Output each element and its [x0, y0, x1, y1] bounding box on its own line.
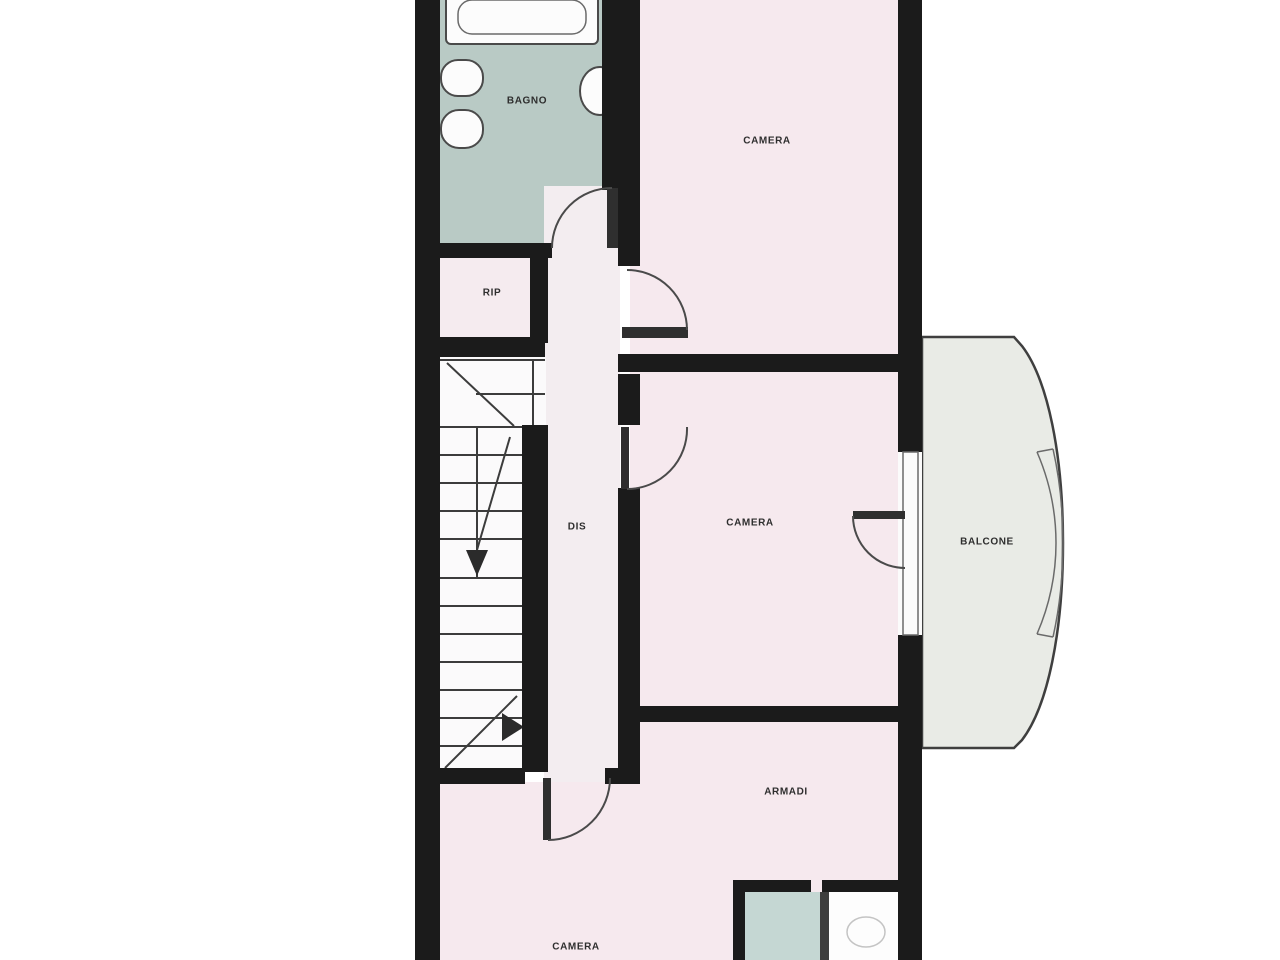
outer-wall-left: [415, 0, 440, 960]
small-bath-west-wall: [733, 880, 745, 960]
room-label-camera-bottom: CAMERA: [552, 942, 600, 953]
stair-east-wall: [522, 425, 548, 772]
french-window-icon: [898, 452, 922, 635]
room-label-balcone: BALCONE: [960, 537, 1014, 548]
dis-corridor-floor: [544, 186, 620, 834]
outer-wall-right-bottom: [898, 635, 922, 960]
room-label-camera-middle: CAMERA: [726, 518, 774, 529]
camera-middle-west-wall-lower: [618, 488, 640, 784]
room-label-bagno: BAGNO: [507, 96, 547, 107]
room-label-rip: RIP: [483, 288, 501, 299]
armadi-floor: [640, 722, 898, 784]
small-bath-divider-wall: [820, 892, 829, 960]
camera-top-floor: [630, 0, 898, 356]
camera-middle-west-wall-upper: [618, 374, 640, 425]
armadi-bottom-wall-right: [822, 880, 898, 892]
camera-middle-door-leaf: [621, 427, 629, 489]
floor-plan: BAGNO CAMERA RIP DIS CAMERA BALCONE ARMA…: [0, 0, 1280, 960]
camera-middle-bottom-wall: [618, 706, 900, 722]
sink-icon: [441, 110, 483, 148]
camera-top-door-leaf: [622, 327, 688, 338]
bagno-door-leaf: [607, 188, 618, 248]
sink-icon: [441, 60, 483, 96]
balcony-door-leaf: [853, 511, 905, 519]
room-label-camera-top: CAMERA: [743, 136, 791, 147]
stair-bottom-wall: [433, 768, 525, 784]
room-label-dis: DIS: [568, 522, 586, 533]
camera-top-west-wall: [618, 0, 640, 266]
camera-divider-wall: [618, 354, 900, 372]
camera-bottom-door-leaf: [543, 778, 551, 840]
outer-wall-right-top: [898, 0, 922, 452]
rip-bottom-wall: [433, 337, 545, 357]
rip-east-wall: [530, 243, 548, 343]
small-room-floor: [829, 892, 898, 960]
floor-plan-drawing: [0, 0, 1280, 960]
bathtub-icon: [446, 0, 598, 44]
small-bath-floor: [745, 892, 820, 960]
room-label-armadi: ARMADI: [764, 787, 808, 798]
